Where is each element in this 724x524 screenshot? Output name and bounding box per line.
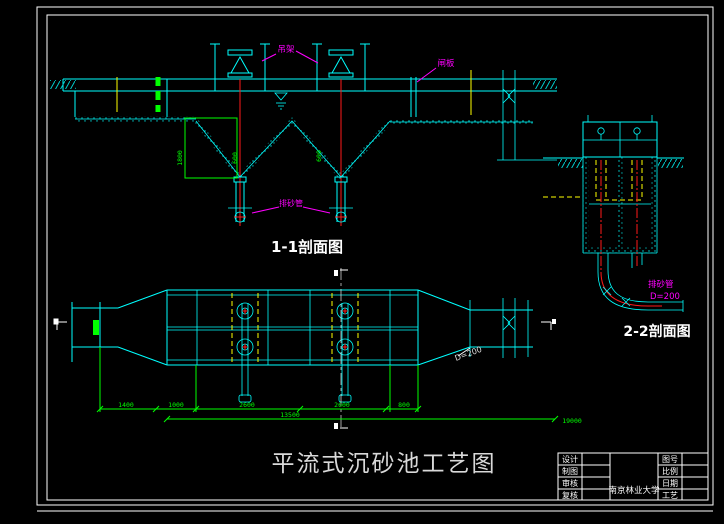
gate-label: 闸板 — [437, 58, 455, 69]
svg-text:1400: 1400 — [118, 401, 134, 409]
titleblock-process-label: 工艺 — [662, 491, 678, 500]
svg-text:1000: 1000 — [168, 401, 184, 409]
cut-mark-1-right — [541, 319, 556, 330]
cut-mark-1-left — [54, 319, 67, 330]
svg-text:13500: 13500 — [280, 411, 300, 419]
dim-left-wall: 600 — [231, 152, 239, 164]
hopper-circles — [237, 303, 353, 355]
svg-text:800: 800 — [398, 401, 410, 409]
dim-right-wall: 600 — [315, 150, 323, 162]
titleblock-draft-label: 制图 — [562, 466, 578, 476]
svg-text:2600: 2600 — [334, 401, 350, 409]
titleblock-design-label: 设计 — [562, 454, 578, 464]
grit-pipe-label: 排砂管 — [279, 198, 303, 208]
svg-text:2600: 2600 — [239, 401, 255, 409]
plan-pipes — [239, 303, 351, 402]
titleblock-drawingno-label: 图号 — [662, 455, 678, 464]
inlet-gate-plan — [93, 320, 99, 335]
break-symbol-plan — [503, 298, 515, 358]
ground-hatch-left — [50, 80, 76, 89]
titleblock-date-label: 日期 — [662, 479, 678, 488]
hoist-label: 吊架 — [277, 45, 295, 55]
dim-depth: 1800 — [176, 150, 184, 166]
titleblock-review-label: 复核 — [562, 490, 578, 500]
svg-text:19000: 19000 — [562, 417, 582, 425]
water-level-icon — [275, 93, 287, 109]
titleblock-organization: 南京林业大学 — [608, 485, 660, 496]
ground-hatch-right — [533, 80, 557, 89]
titleblock-scale-label: 比例 — [662, 466, 678, 476]
cad-sheet: 吊架 — [0, 0, 724, 524]
sheet-frame — [37, 7, 713, 511]
section-1-1-title: 1-1剖面图 — [271, 238, 343, 256]
section-2-2-view: 排砂管 D=200 2-2剖面图 — [543, 115, 691, 340]
pipe-size-label: D=200 — [650, 292, 680, 302]
detail-box — [185, 118, 237, 178]
titleblock-check-label: 审核 — [562, 478, 578, 488]
title-block: 设计 制图 审核 复核 图号 比例 日期 工艺 南京林业大学 — [558, 453, 708, 500]
drawing-title: 平流式沉砂池工艺图 — [272, 451, 497, 477]
grit-chamber-drawing: 吊架 — [0, 0, 724, 524]
section-2-2-title: 2-2剖面图 — [623, 323, 690, 340]
pipe-name-label: 排砂管 — [648, 279, 674, 290]
plan-dimensions: 1400 1000 2600 2600 800 13500 19000 — [97, 347, 582, 425]
plan-view: D=200 1400 1000 2600 2600 800 13500 1900… — [54, 268, 582, 430]
grit-hoppers — [196, 121, 390, 177]
section-1-1-view: 吊架 — [50, 44, 557, 256]
